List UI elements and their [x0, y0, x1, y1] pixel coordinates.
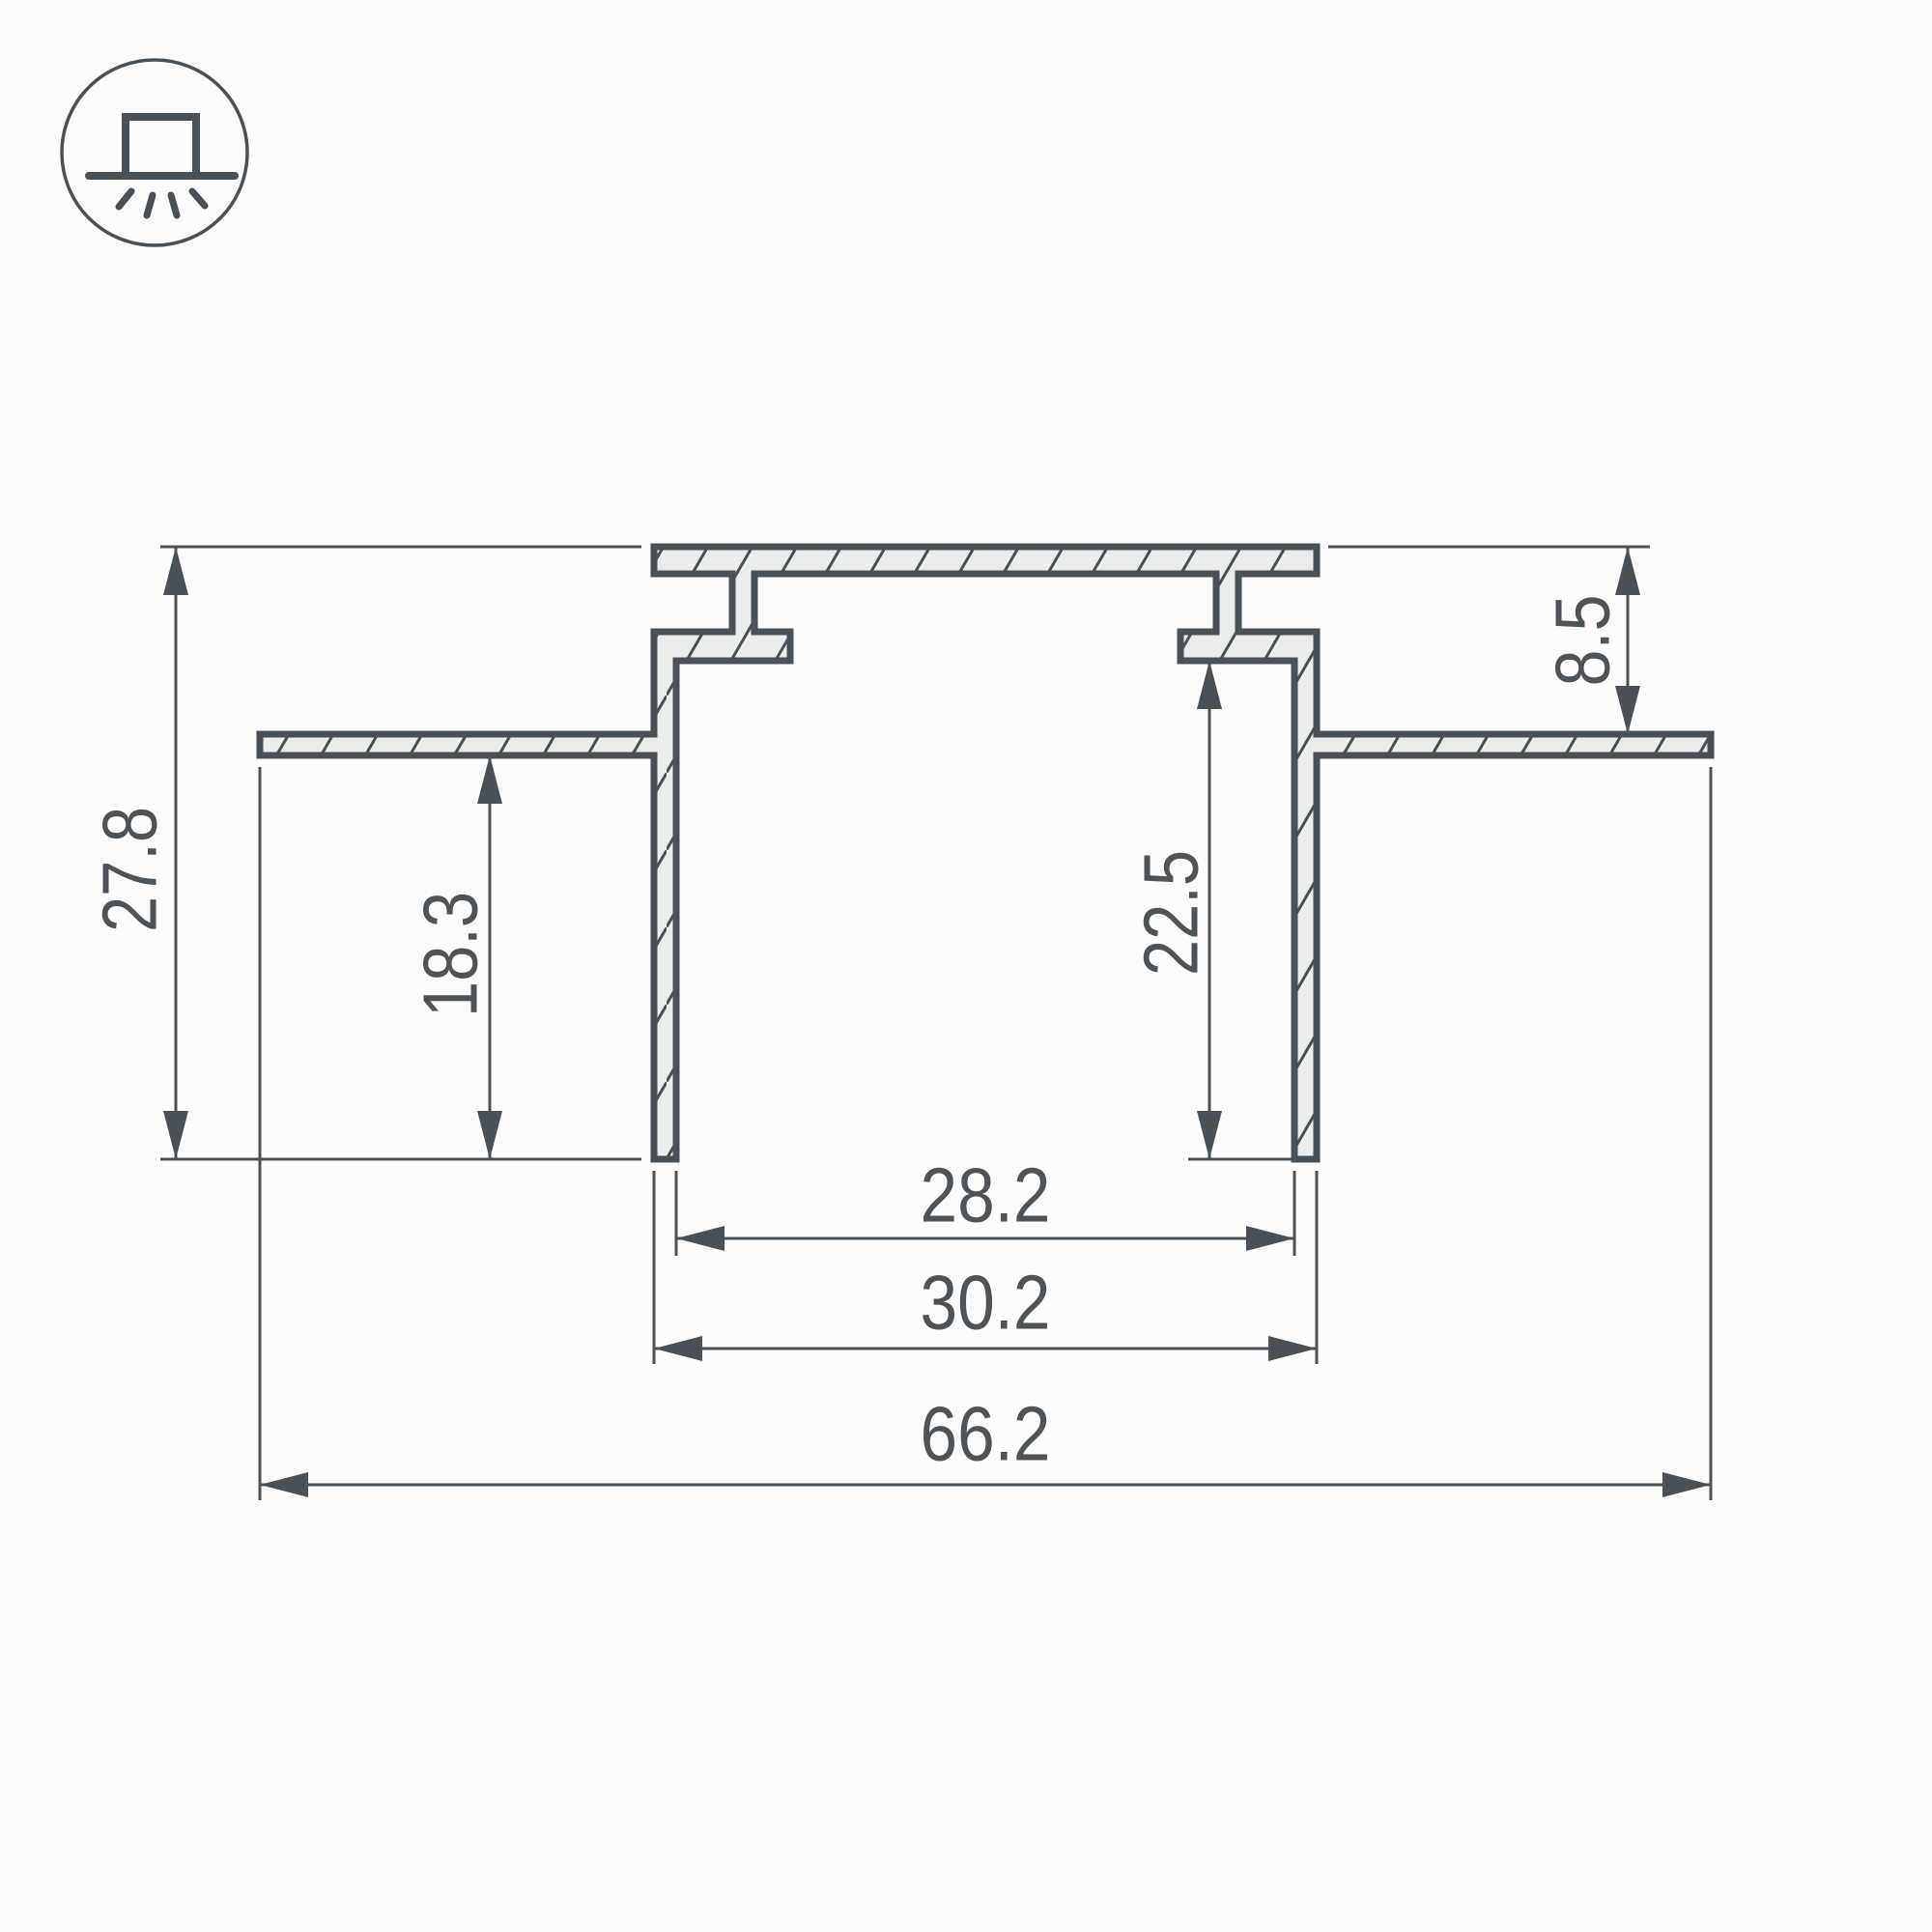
- technical-drawing-canvas: 27.8 18.3 22.5 8.5 28.2 30.2: [0, 0, 1932, 1932]
- dim-label-cavity-depth: 22.5: [1128, 850, 1214, 976]
- dim-label-total-width: 66.2: [921, 1391, 1051, 1477]
- dim-label-body-width: 30.2: [921, 1260, 1051, 1346]
- page: { "icon": { "name": "recessed-light-icon…: [0, 0, 1932, 1932]
- dim-label-side-depth: 18.3: [408, 892, 494, 1017]
- dim-label-opening-width: 28.2: [921, 1152, 1051, 1238]
- drawing-background: [0, 0, 1932, 1932]
- dim-label-total-height: 27.8: [87, 807, 173, 932]
- dim-label-top-recess: 8.5: [1540, 595, 1626, 687]
